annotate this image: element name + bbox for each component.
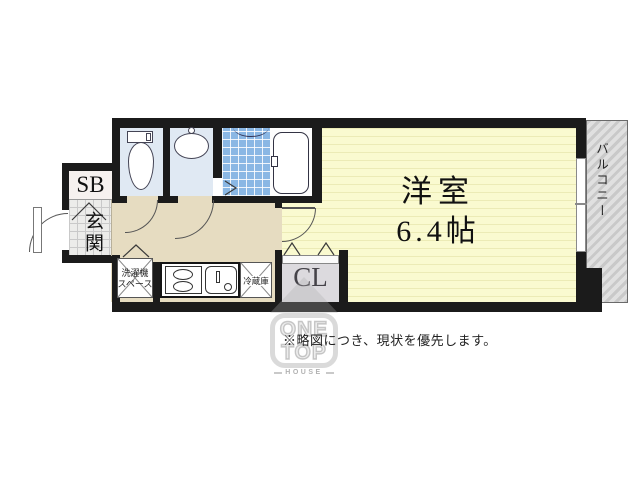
main-room-name-label: 洋室: [352, 166, 524, 211]
main-room-size-label: 6.4帖: [347, 206, 529, 250]
balcony-label: バルコニー: [592, 142, 611, 262]
shoe-box-label: SB: [69, 172, 112, 198]
watermark-dash: [274, 372, 282, 374]
watermark-dash: [326, 372, 334, 374]
watermark-house-text: HOUSE: [266, 369, 342, 376]
washing-machine-label: 洗濯機 スペース: [116, 268, 154, 290]
disclaimer-note: ※略図につき、現状を優先します。: [283, 330, 497, 349]
refrigerator-label: 冷蔵庫: [240, 275, 272, 287]
floor-plan-image: 洋室 6.4帖 バルコニー SB 玄関 CL 洗濯機 スペース 冷蔵庫 ONE …: [0, 0, 640, 480]
entrance-label: 玄関: [79, 211, 106, 261]
bathroom-door-triangle-icon: [225, 181, 236, 195]
watermark-house-roof-icon: [270, 277, 338, 313]
closet-folding-door-icon: [284, 243, 300, 255]
washer-folding-door-icon: [123, 245, 149, 257]
closet-folding-door-icon: [318, 243, 334, 255]
